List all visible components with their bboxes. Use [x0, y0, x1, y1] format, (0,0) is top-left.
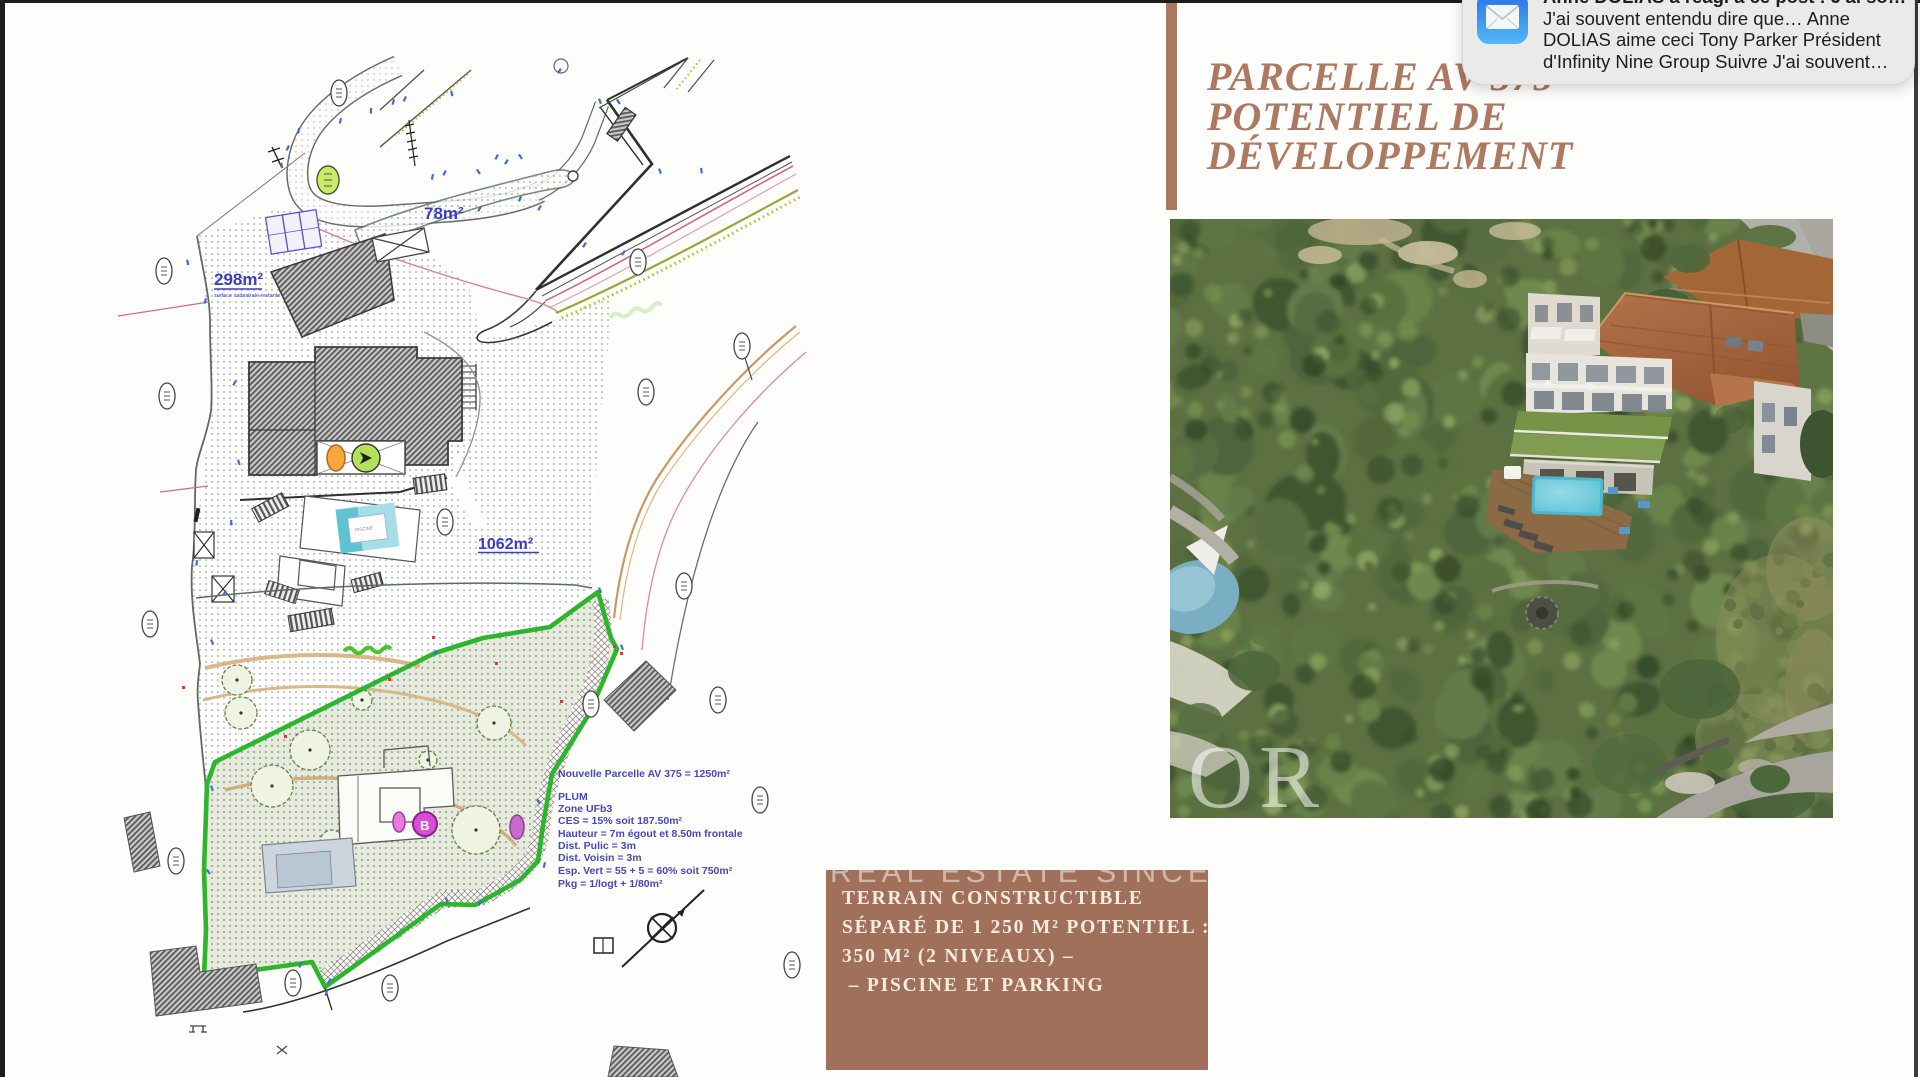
svg-text:CES = 15% soit 187.50m²: CES = 15% soit 187.50m²	[558, 815, 683, 827]
svg-text:298m²: 298m²	[214, 270, 263, 289]
svg-text:Hauteur = 7m égout et 8.50m fr: Hauteur = 7m égout et 8.50m frontale	[558, 828, 743, 840]
svg-text:B: B	[420, 818, 429, 833]
svg-text:PLUM: PLUM	[558, 791, 588, 803]
svg-text:Esp. Vert = 55 + 5 = 60% soit: Esp. Vert = 55 + 5 = 60% soit 750m²	[558, 865, 733, 877]
svg-text:Dist. Pulic = 3m: Dist. Pulic = 3m	[558, 840, 636, 852]
svg-text:Dist. Voisin = 3m: Dist. Voisin = 3m	[558, 852, 642, 864]
svg-text:Pkg = 1/logt + 1/80m²: Pkg = 1/logt + 1/80m²	[558, 878, 663, 890]
svg-text:Zone UFb3: Zone UFb3	[558, 803, 612, 815]
svg-text:Nouvelle Parcelle AV 375 = 125: Nouvelle Parcelle AV 375 = 1250m²	[558, 768, 730, 780]
svg-text:78m²: 78m²	[424, 204, 464, 223]
svg-text:surface cadastrale restante: surface cadastrale restante	[214, 293, 280, 299]
svg-text:1062m²: 1062m²	[478, 536, 533, 553]
